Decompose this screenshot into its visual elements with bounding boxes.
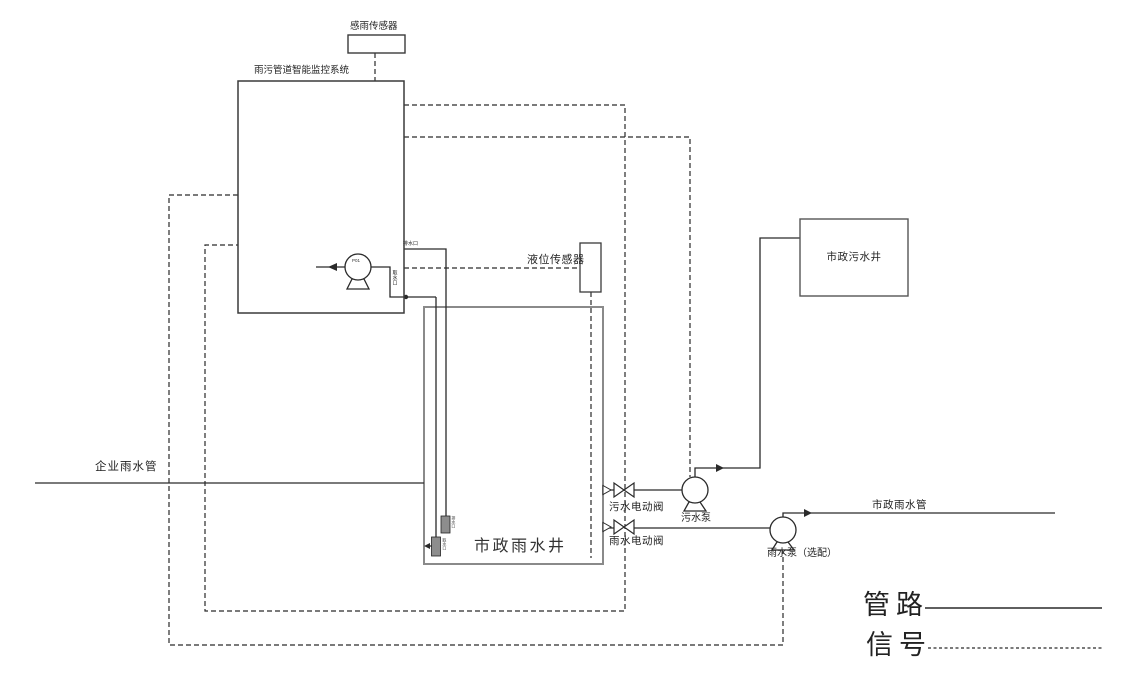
sewage-valve-symbol bbox=[614, 483, 634, 497]
diagram-page: 感雨传感器 雨污管道智能监控系统 液位传感器 市政污水井 市政雨水井 企业雨水管… bbox=[0, 0, 1127, 692]
sewage-valve-label: 污水电动阀 bbox=[609, 502, 664, 514]
enterprise-rain-pipe-label: 企业雨水管 bbox=[95, 461, 158, 474]
rain-sensor-box bbox=[348, 35, 405, 53]
sewage-pump-body bbox=[682, 477, 708, 503]
monitor-system-label: 雨污管道智能监控系统 bbox=[254, 66, 349, 76]
drain-strainer-label: 排水口 bbox=[451, 516, 455, 528]
rain-well-label: 市政雨水井 bbox=[474, 538, 567, 556]
water-intake-label: 取水口 bbox=[391, 270, 397, 285]
legend-signal-label: 信号 bbox=[866, 631, 932, 661]
municipal-rain-pipe-label: 市政雨水管 bbox=[872, 500, 927, 512]
diagram-canvas bbox=[0, 0, 1127, 692]
sewage-well-label: 市政污水井 bbox=[827, 252, 882, 264]
legend-pipe-label: 管路 bbox=[863, 591, 929, 621]
drain-outlet-label: 排水口 bbox=[403, 242, 418, 248]
rain-pump-body bbox=[770, 517, 796, 543]
level-sensor-box bbox=[580, 243, 601, 292]
rain-pump-label: 雨水泵（选配） bbox=[767, 548, 837, 559]
pumps-group bbox=[345, 254, 796, 550]
rain-valve-right-triangle bbox=[624, 520, 634, 534]
legend-lines-group bbox=[925, 608, 1104, 648]
monitor-system-box bbox=[238, 81, 404, 313]
sewage-well-label-box: 市政污水井 bbox=[800, 219, 908, 296]
rain-valve-label: 雨水电动阀 bbox=[609, 536, 664, 548]
rain-valve-left-triangle bbox=[614, 520, 624, 534]
sewage-valve-left-triangle bbox=[614, 483, 624, 497]
nozzle-sewage-outlet bbox=[603, 486, 611, 495]
pipe-sewage-discharge bbox=[695, 238, 800, 477]
rain-pump-symbol bbox=[770, 517, 796, 550]
rain-sensor-label: 感雨传感器 bbox=[350, 22, 398, 32]
controller-pump-tag: P01 bbox=[352, 259, 360, 264]
nozzle-rain-outlet bbox=[603, 523, 611, 532]
arrow-rain-discharge bbox=[804, 509, 812, 517]
rain-valve-symbol bbox=[614, 520, 634, 534]
sewage-pump-label: 污水泵 bbox=[681, 513, 711, 524]
level-sensor-label: 液位传感器 bbox=[527, 254, 585, 266]
sewage-pump-symbol bbox=[682, 477, 708, 511]
strainers-group bbox=[432, 516, 451, 556]
pipe-municipal-rain bbox=[783, 513, 1055, 517]
arrow-sewage-discharge bbox=[716, 464, 724, 472]
intake-strainer-symbol bbox=[432, 537, 441, 556]
intake-strainer-label: 取水口 bbox=[442, 538, 446, 550]
drain-strainer-symbol bbox=[441, 516, 450, 533]
